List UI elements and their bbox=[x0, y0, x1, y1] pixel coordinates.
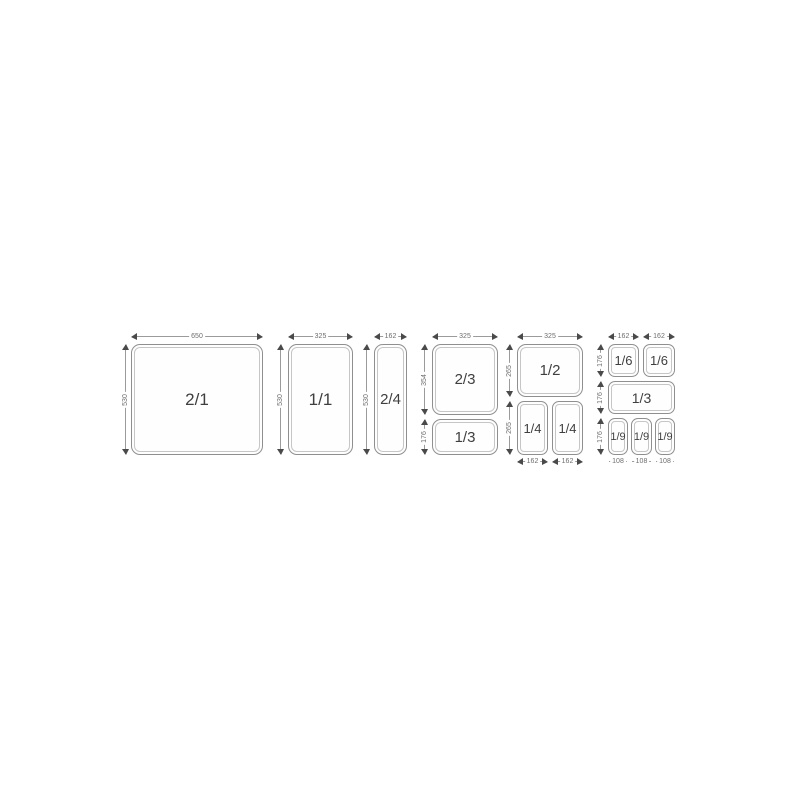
dimension-top-162-right: 162 bbox=[643, 332, 675, 341]
dimension-left-176-row3: 176 bbox=[596, 418, 605, 455]
dimension-top-325: 325 bbox=[288, 332, 353, 341]
dim-arrow-right bbox=[577, 333, 583, 340]
dimension-left-265-bottom: 265 bbox=[505, 401, 514, 455]
pan-2-4: 2/4 bbox=[374, 344, 407, 455]
dim-arrow-left bbox=[432, 333, 438, 340]
pan-size-label: 2/4 bbox=[380, 391, 401, 408]
dim-value: 176 bbox=[597, 353, 605, 369]
pan-size-label: 1/4 bbox=[558, 421, 576, 436]
dimension-left-176-row2: 176 bbox=[596, 381, 605, 414]
pan-size-label: 1/4 bbox=[523, 421, 541, 436]
dim-arrow-down bbox=[421, 409, 428, 415]
pan-1-3-horizontal: 1/3 bbox=[608, 381, 675, 414]
dim-value: 176 bbox=[421, 429, 429, 445]
pan-size-label: 2/1 bbox=[185, 390, 209, 410]
pan-2-3: 2/3 bbox=[432, 344, 498, 415]
pan-1-4-right: 1/4 bbox=[552, 401, 583, 455]
dim-arrow-left bbox=[374, 333, 380, 340]
dimension-left-176: 176 bbox=[420, 419, 429, 455]
pan-1-6-left: 1/6 bbox=[608, 344, 639, 377]
dim-value: 325 bbox=[457, 333, 473, 341]
dim-value: 162 bbox=[616, 333, 632, 341]
dim-value: 354 bbox=[421, 372, 429, 388]
dim-value: 325 bbox=[313, 333, 329, 341]
dim-arrow-down bbox=[506, 449, 513, 455]
pan-size-label: 1/2 bbox=[540, 362, 561, 379]
dim-arrow-left bbox=[552, 458, 558, 465]
pan-size-label: 1/6 bbox=[614, 353, 632, 368]
pan-1-6-right: 1/6 bbox=[643, 344, 675, 377]
dim-arrow-left bbox=[131, 333, 137, 340]
dim-arrow-left bbox=[643, 333, 649, 340]
dim-value: 530 bbox=[277, 392, 285, 408]
dim-value: 162 bbox=[651, 333, 667, 341]
dimension-left-176-row1: 176 bbox=[596, 344, 605, 377]
dim-arrow-up bbox=[506, 344, 513, 350]
dim-value: 176 bbox=[597, 429, 605, 445]
dimension-left-265-top: 265 bbox=[505, 344, 514, 397]
dimension-top-325: 325 bbox=[432, 332, 498, 341]
dim-value: 325 bbox=[542, 333, 558, 341]
dim-arrow-up bbox=[597, 381, 604, 387]
dim-value: 650 bbox=[189, 333, 205, 341]
dim-arrow-up bbox=[421, 419, 428, 425]
dim-arrow-right bbox=[542, 458, 548, 465]
dimension-left-354: 354 bbox=[420, 344, 429, 415]
dim-value: 530 bbox=[363, 392, 371, 408]
dimension-bottom-162-left: 162 bbox=[517, 457, 548, 466]
dim-value: 108 bbox=[657, 458, 673, 466]
dim-arrow-right bbox=[577, 458, 583, 465]
dim-arrow-right bbox=[347, 333, 353, 340]
pan-size-label: 1/9 bbox=[634, 431, 649, 443]
dim-value: 108 bbox=[610, 458, 626, 466]
dim-arrow-up bbox=[597, 418, 604, 424]
dimension-top-650: 650 bbox=[131, 332, 263, 341]
dim-value: 530 bbox=[122, 392, 130, 408]
dim-arrow-down bbox=[506, 391, 513, 397]
dim-arrow-up bbox=[277, 344, 284, 350]
dim-arrow-down bbox=[122, 449, 129, 455]
pan-size-label: 1/3 bbox=[632, 390, 651, 406]
dim-value: 265 bbox=[506, 363, 514, 379]
dim-arrow-up bbox=[421, 344, 428, 350]
pan-size-label: 1/9 bbox=[610, 431, 625, 443]
pan-1-9-third: 1/9 bbox=[655, 418, 675, 455]
pan-size-label: 1/9 bbox=[657, 431, 672, 443]
dim-arrow-left bbox=[517, 458, 523, 465]
dim-value: 176 bbox=[597, 390, 605, 406]
dimension-bottom-108-third: 108 bbox=[655, 457, 675, 466]
dimension-left-530: 530 bbox=[121, 344, 130, 455]
dim-arrow-right bbox=[492, 333, 498, 340]
dim-arrow-up bbox=[122, 344, 129, 350]
dim-arrow-left bbox=[288, 333, 294, 340]
pan-size-label: 2/3 bbox=[455, 371, 476, 388]
gn-pan-size-diagram: 650 530 2/1 325 530 1/1 bbox=[0, 0, 800, 800]
dim-arrow-right bbox=[257, 333, 263, 340]
dimension-top-162-left: 162 bbox=[608, 332, 639, 341]
pan-size-label: 1/6 bbox=[650, 353, 668, 368]
dimension-top-325: 325 bbox=[517, 332, 583, 341]
dim-arrow-up bbox=[597, 344, 604, 350]
dim-value: 162 bbox=[560, 458, 576, 466]
pan-1-4-left: 1/4 bbox=[517, 401, 548, 455]
pan-size-label: 1/1 bbox=[309, 390, 333, 410]
pan-size-label: 1/3 bbox=[455, 429, 476, 446]
dim-arrow-up bbox=[506, 401, 513, 407]
dim-arrow-right bbox=[633, 333, 639, 340]
dimension-bottom-162-right: 162 bbox=[552, 457, 583, 466]
dim-arrow-left bbox=[517, 333, 523, 340]
dim-arrow-right bbox=[669, 333, 675, 340]
dim-arrow-down bbox=[597, 371, 604, 377]
dim-value: 162 bbox=[525, 458, 541, 466]
pan-1-3: 1/3 bbox=[432, 419, 498, 455]
dimension-left-530: 530 bbox=[276, 344, 285, 455]
pan-1-2: 1/2 bbox=[517, 344, 583, 397]
pan-1-9-first: 1/9 bbox=[608, 418, 628, 455]
dimension-top-162: 162 bbox=[374, 332, 407, 341]
dim-value: 108 bbox=[634, 458, 650, 466]
pan-2-1: 2/1 bbox=[131, 344, 263, 455]
dimension-left-530: 530 bbox=[362, 344, 371, 455]
pan-1-1: 1/1 bbox=[288, 344, 353, 455]
dimension-bottom-108-first: 108 bbox=[608, 457, 628, 466]
dim-arrow-right bbox=[401, 333, 407, 340]
dimension-bottom-108-second: 108 bbox=[631, 457, 652, 466]
pan-1-9-second: 1/9 bbox=[631, 418, 652, 455]
dim-value: 162 bbox=[383, 333, 399, 341]
dim-arrow-up bbox=[363, 344, 370, 350]
dim-arrow-down bbox=[277, 449, 284, 455]
dim-arrow-down bbox=[363, 449, 370, 455]
dim-arrow-left bbox=[608, 333, 614, 340]
dim-arrow-down bbox=[597, 408, 604, 414]
dim-value: 265 bbox=[506, 420, 514, 436]
dim-arrow-down bbox=[597, 449, 604, 455]
dim-arrow-down bbox=[421, 449, 428, 455]
